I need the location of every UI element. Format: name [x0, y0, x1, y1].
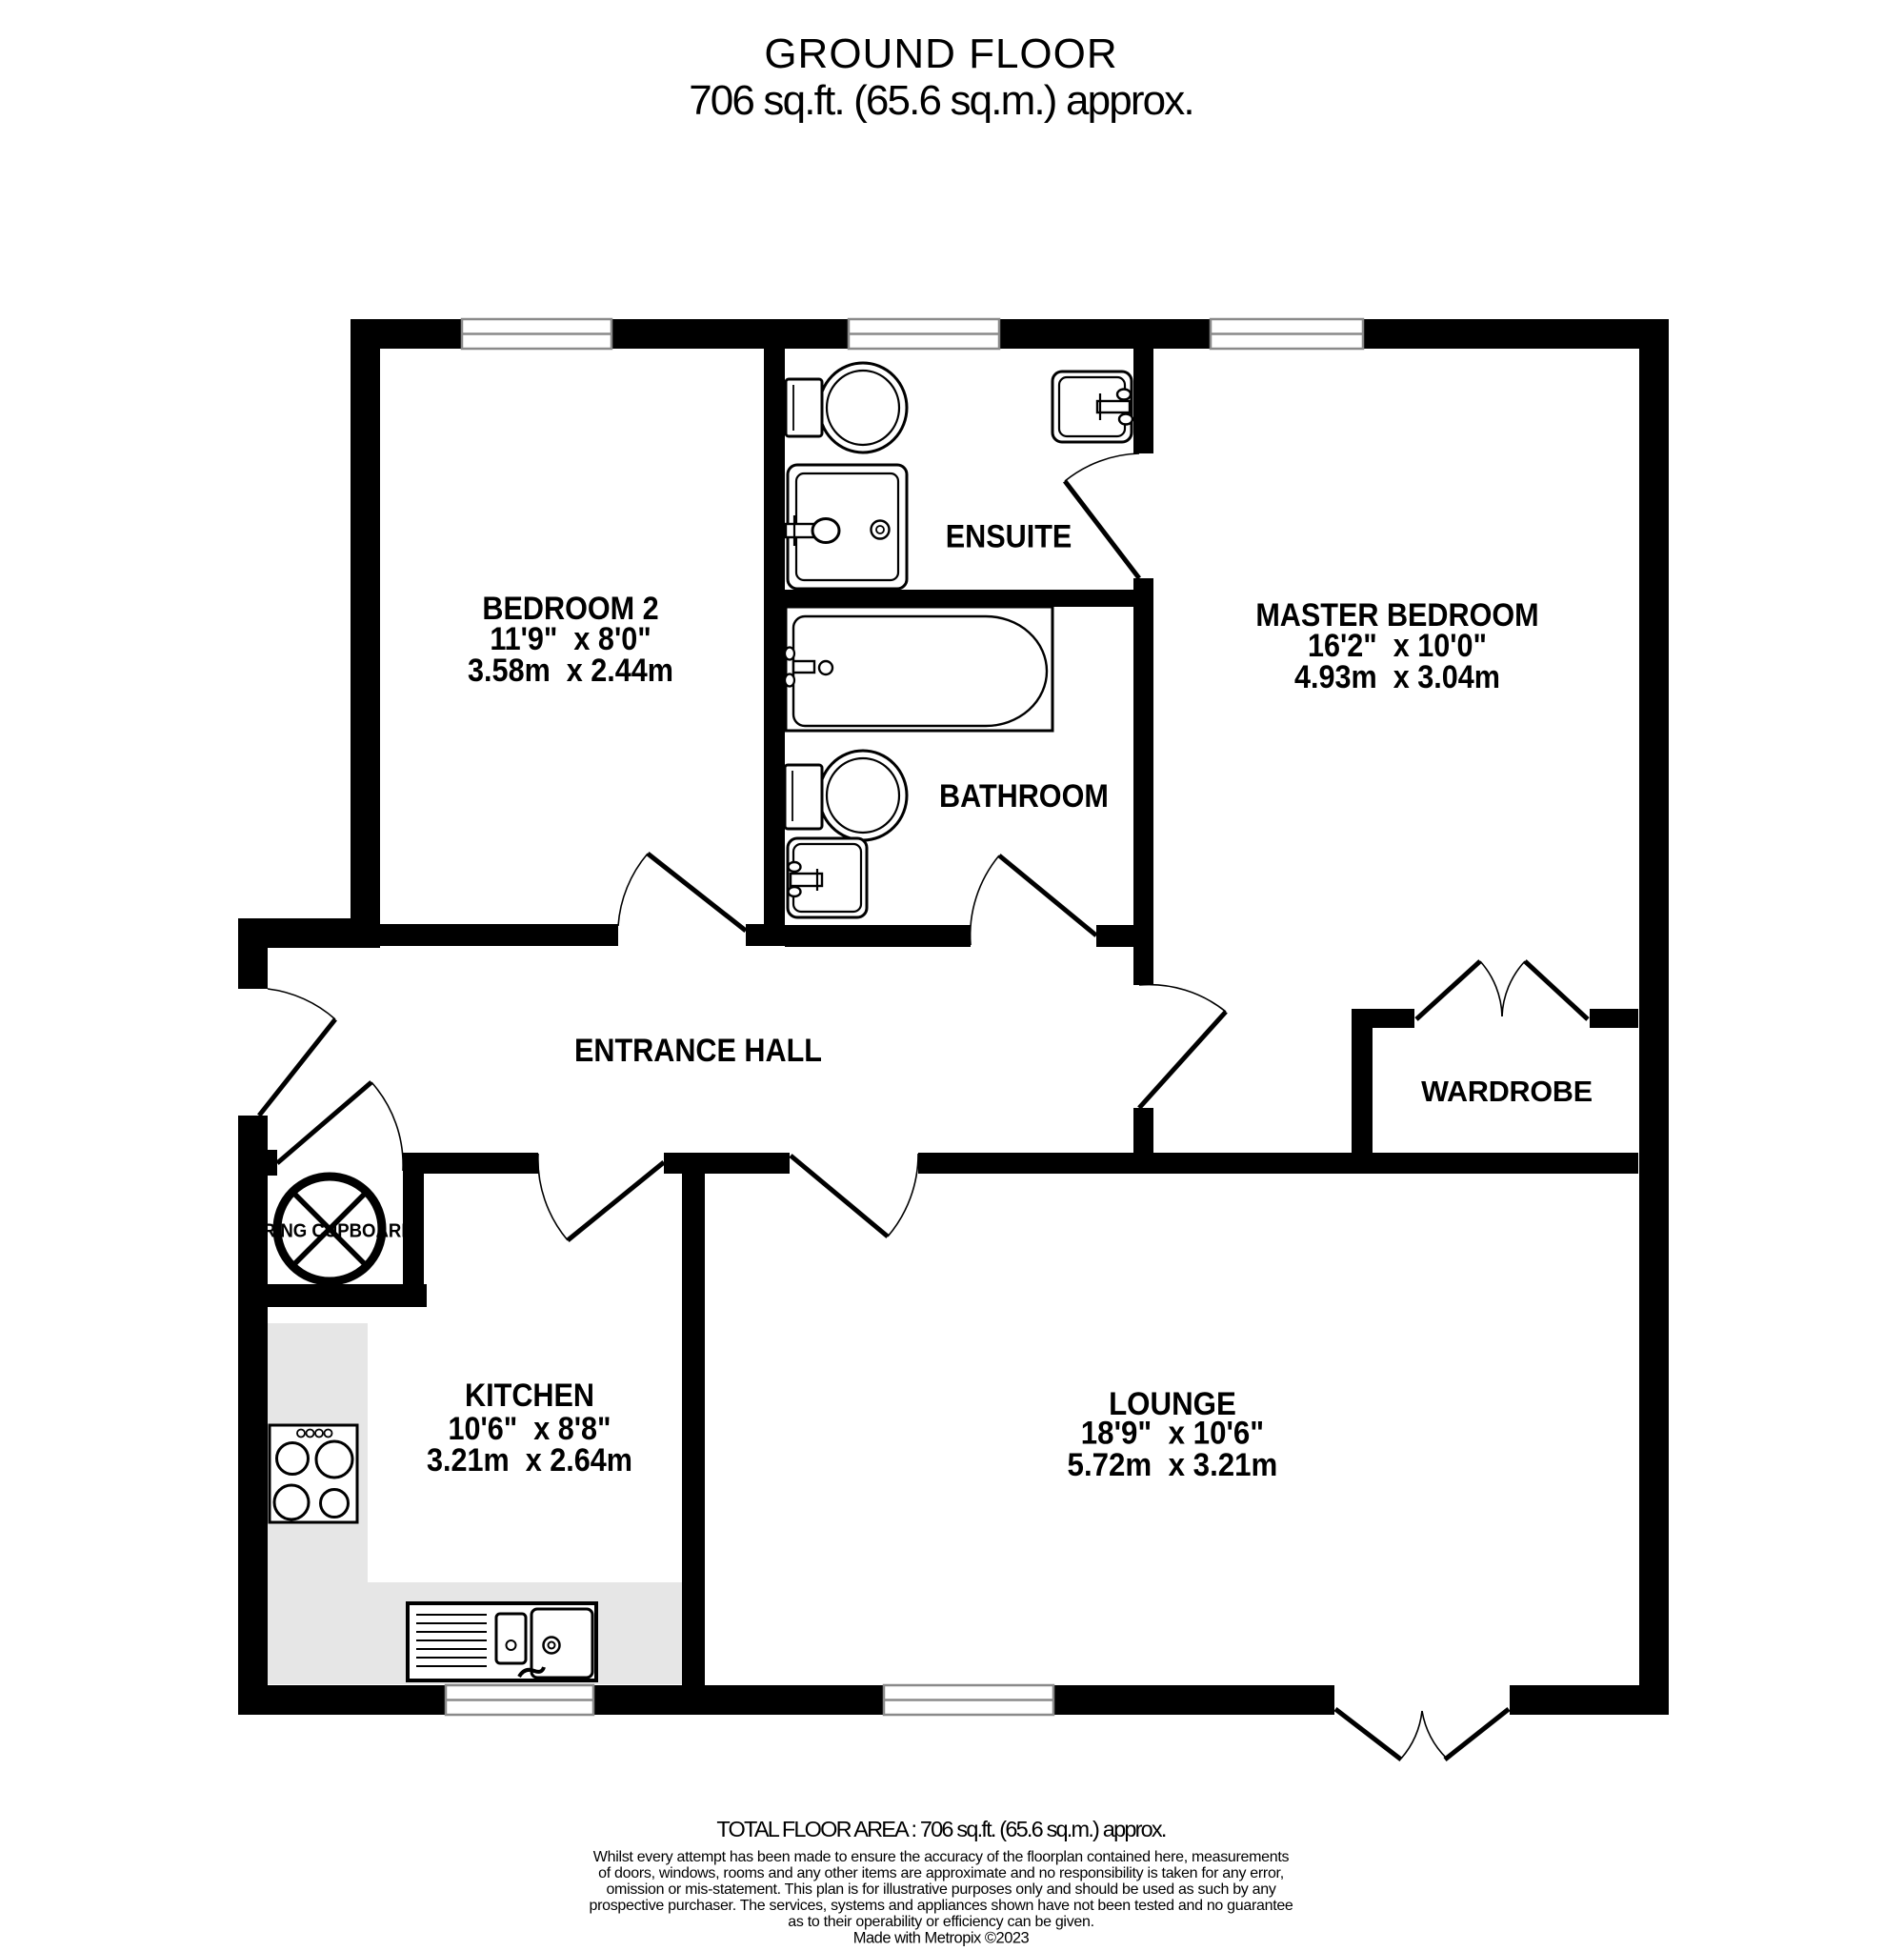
- svg-text:4.93m x 3.04m: 4.93m x 3.04m: [1294, 658, 1500, 694]
- svg-text:omission or mis-statement. Thi: omission or mis-statement. This plan is …: [606, 1881, 1275, 1898]
- svg-text:BATHROOM: BATHROOM: [939, 777, 1109, 814]
- svg-text:AIRING CUPBOARD: AIRING CUPBOARD: [245, 1221, 414, 1242]
- svg-text:ENTRANCE HALL: ENTRANCE HALL: [574, 1032, 822, 1068]
- svg-text:Whilst every attempt has been: Whilst every attempt has been made to en…: [593, 1849, 1290, 1865]
- svg-text:3.21m x 2.64m: 3.21m x 2.64m: [427, 1441, 632, 1478]
- svg-text:GROUND FLOOR: GROUND FLOOR: [764, 30, 1117, 77]
- svg-text:TOTAL FLOOR AREA : 706 sq.ft.: TOTAL FLOOR AREA : 706 sq.ft. (65.6 sq.m…: [716, 1817, 1165, 1841]
- svg-text:3.58m x 2.44m: 3.58m x 2.44m: [468, 652, 673, 688]
- svg-text:of doors, windows, rooms and a: of doors, windows, rooms and any other i…: [598, 1865, 1284, 1881]
- svg-text:706 sq.ft. (65.6 sq.m.) approx: 706 sq.ft. (65.6 sq.m.) approx.: [689, 77, 1193, 124]
- svg-text:KITCHEN: KITCHEN: [465, 1377, 594, 1413]
- svg-text:as to their operability or eff: as to their operability or efficiency ca…: [788, 1914, 1093, 1930]
- svg-text:WARDROBE: WARDROBE: [1421, 1076, 1593, 1108]
- svg-text:5.72m x 3.21m: 5.72m x 3.21m: [1068, 1446, 1278, 1483]
- svg-text:Made with Metropix ©2023: Made with Metropix ©2023: [853, 1930, 1030, 1947]
- svg-text:prospective purchaser. The ser: prospective purchaser. The services, sys…: [589, 1898, 1293, 1914]
- svg-text:ENSUITE: ENSUITE: [946, 518, 1072, 554]
